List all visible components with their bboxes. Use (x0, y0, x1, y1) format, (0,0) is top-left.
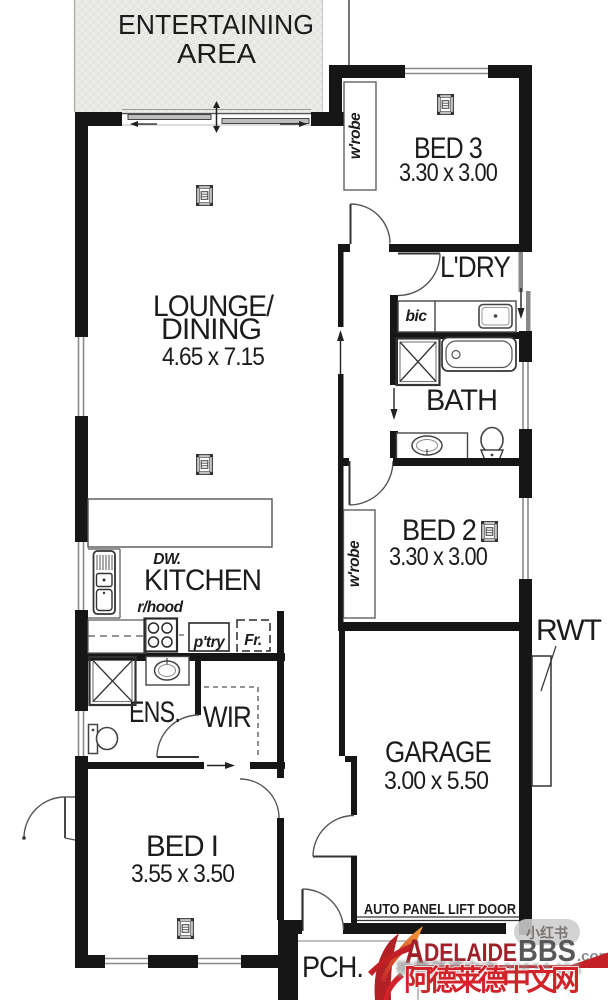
svg-text:3.30 x 3.00: 3.30 x 3.00 (389, 543, 487, 571)
svg-text:KITCHEN: KITCHEN (144, 564, 261, 597)
svg-text:BATH: BATH (426, 384, 497, 417)
svg-text:ENS.: ENS. (129, 696, 180, 729)
svg-text:阿德莱德中文网: 阿德莱德中文网 (404, 963, 579, 997)
svg-text:L'DRY: L'DRY (440, 251, 511, 284)
svg-text:w'robe: w'robe (346, 540, 363, 587)
svg-text:AREA: AREA (177, 38, 256, 69)
svg-text:3.00 x 5.50: 3.00 x 5.50 (384, 767, 488, 795)
svg-text:r/hood: r/hood (137, 599, 183, 616)
svg-text:Fr.: Fr. (244, 632, 261, 649)
svg-text:GARAGE: GARAGE (385, 736, 491, 769)
svg-text:w'robe: w'robe (347, 112, 364, 159)
svg-text:DINING: DINING (161, 313, 261, 346)
svg-text:bic: bic (406, 308, 428, 325)
svg-text:WIR: WIR (203, 701, 251, 734)
svg-text:3.55 x 3.50: 3.55 x 3.50 (131, 860, 234, 888)
svg-text:4.65 x 7.15: 4.65 x 7.15 (162, 343, 264, 371)
svg-text:ENTERTAINING: ENTERTAINING (118, 9, 314, 40)
svg-text:3.30 x 3.00: 3.30 x 3.00 (399, 159, 497, 187)
svg-text:AUTO PANEL LIFT DOOR: AUTO PANEL LIFT DOOR (364, 902, 516, 918)
svg-text:BED I: BED I (146, 830, 218, 863)
svg-text:RWT: RWT (536, 614, 602, 647)
svg-text:PCH.: PCH. (302, 951, 363, 984)
svg-text:p'try: p'try (193, 634, 226, 651)
